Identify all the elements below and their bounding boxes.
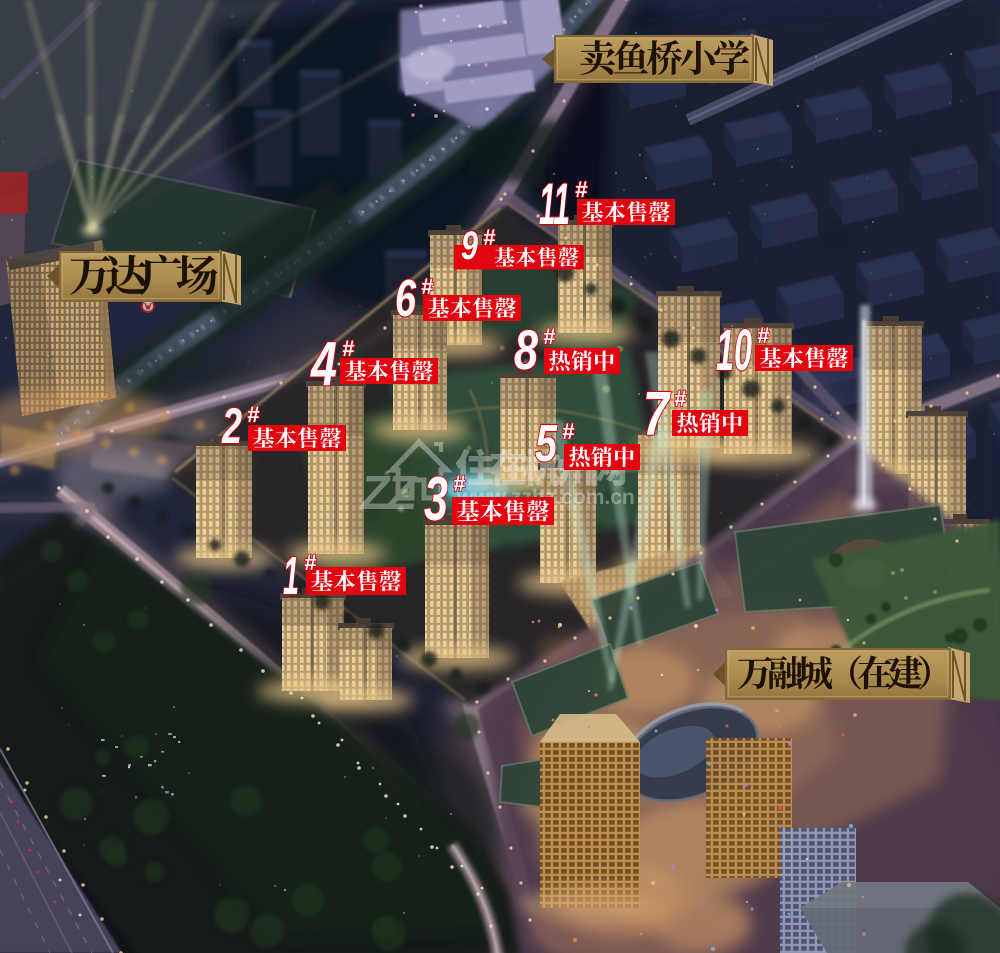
svg-text:1: 1 [283,546,299,606]
svg-text:#: # [757,323,770,348]
svg-text:#: # [543,324,556,349]
svg-text:#: # [674,386,687,411]
svg-text:2: 2 [221,398,242,454]
svg-text:#: # [304,550,317,575]
svg-text:4: 4 [309,330,337,399]
svg-text:9: 9 [461,224,479,268]
svg-text:#: # [421,274,434,299]
svg-text:5: 5 [535,415,558,473]
svg-text:#: # [453,471,466,496]
svg-text:#: # [483,225,496,250]
svg-text:8: 8 [514,318,539,381]
svg-text:#: # [247,402,260,427]
svg-text:11: 11 [539,172,570,237]
svg-text:#: # [562,419,575,444]
svg-text:7: 7 [643,380,671,449]
svg-text:6: 6 [395,270,417,328]
svg-text:#: # [342,336,355,361]
svg-text:10: 10 [716,318,752,383]
svg-text:#: # [575,177,588,202]
svg-text:3: 3 [424,465,448,534]
